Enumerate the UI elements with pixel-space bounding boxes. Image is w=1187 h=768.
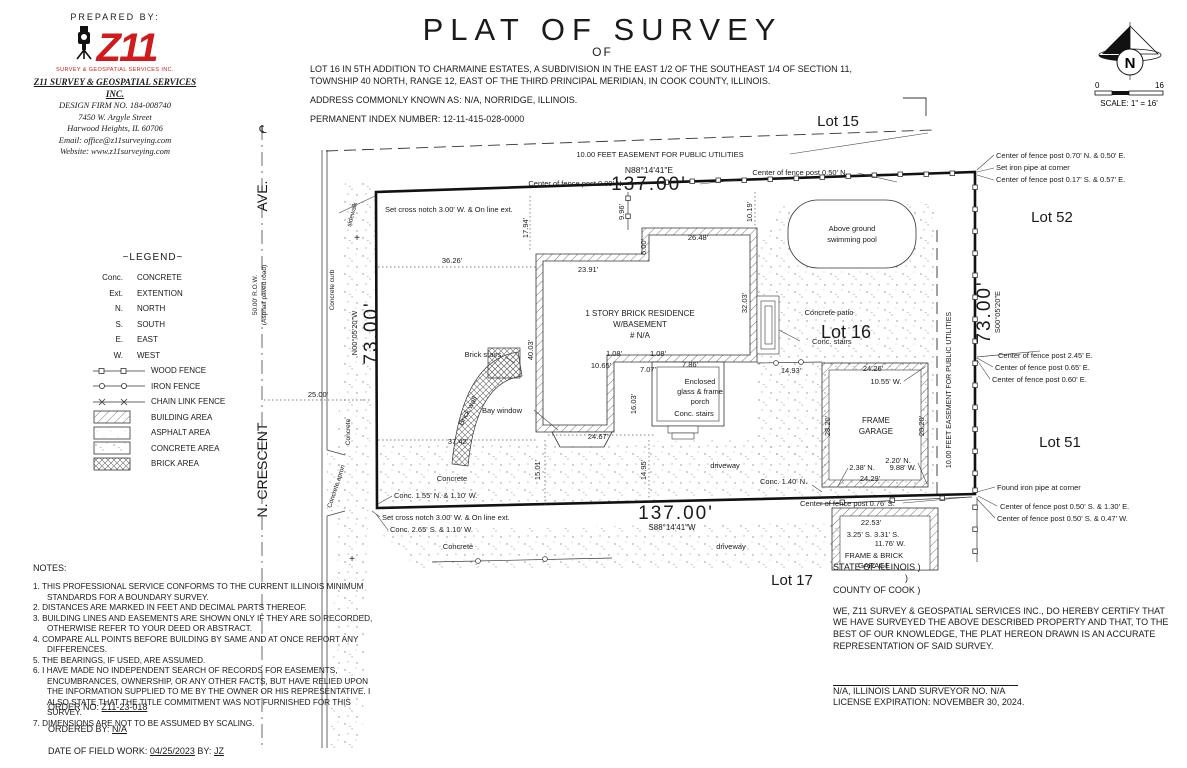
note-item: 5. THE BEARINGS, IF USED, ARE ASSUMED. [33,656,381,667]
dim-988w: 9.88' W. [890,463,917,472]
scale-sixteen: 16 [1155,81,1164,90]
porch-label-1: Enclosed [685,377,716,386]
dim-238n: 2.38' N. [849,463,875,472]
legend-label: CONCRETE AREA [151,444,219,453]
order-no-line: ORDER NO: Z11-23-018 [48,702,224,712]
legend-row: W.WEST [93,348,278,364]
firm-website: Website: www.z11surveying.com [30,146,200,157]
dim-2820-w: 28.20' [823,415,832,436]
lot-corner-bracket [903,98,926,116]
bearing-south: S88°14'41"W [648,523,696,532]
fence-post-076s: Center of fence post 0.76' S. [800,499,895,508]
note-item: 2. DISTANCES ARE MARKED IN FEET AND DECI… [33,603,381,614]
legend-row: S.SOUTH [93,317,278,333]
dim-996: 9.96' [617,203,626,220]
fence-post-060e: Center of fence post 0.60' E. [992,375,1087,384]
bay-window-label: Bay window [482,406,523,415]
dim-1794: 17.94' [521,217,530,238]
concrete-sw-label: Concrete [437,474,467,483]
brick-stairs-label: Brick stairs [465,350,502,359]
legend-label: CONCRETE [137,273,182,282]
dim-707: 7.07' [640,365,657,374]
legend-row: BUILDING AREA [93,410,278,426]
fieldwork-date: 04/25/2023 [150,746,195,756]
legend-label: SOUTH [137,320,165,329]
cert-paren: ) [905,573,1181,584]
legend-row: Ext.EXTENTION [93,286,278,302]
dim-east-73: 73.00' [974,280,995,343]
dim-1019: 10.19' [745,201,754,222]
dim-2820-e: 28.20' [917,415,926,436]
design-firm-no: DESIGN FIRM NO. 184-008740 [30,100,200,111]
lot-51-label: Lot 51 [1039,434,1081,451]
title-of: OF [310,45,895,59]
fence-post-245e: Center of fence post 2.45' E. [998,351,1093,360]
conc-140n: Conc. 1.40' N. [760,477,807,486]
porch-label-2: glass & frame [677,387,723,396]
certification-block: STATE OF ILLINOIS ) ) COUNTY OF COOK ) W… [833,562,1181,709]
legend-row: CHAIN LINK FENCE [93,394,278,410]
concrete-area-swatch [93,441,151,455]
cert-state: STATE OF ILLINOIS ) [833,562,1181,573]
legend-abbr: E. [93,335,137,344]
fieldwork-line: DATE OF FIELD WORK: 04/25/2023 BY: JZ [48,746,224,756]
dim-2648: 26.48' [688,233,709,242]
cross-notch-north: Set cross notch 3.00' W. & On line ext. [385,205,513,214]
legend-abbr: N. [93,304,137,313]
fence-post-065e: Center of fence post 0.65' E. [995,363,1090,372]
dim-786: 7.86' [682,360,699,369]
dim-25: 25.00' [308,390,329,399]
garage-label-1: FRAME [862,416,890,425]
legend-row: ASPHALT AREA [93,425,278,441]
bearing-west: N00°05'20"W [350,310,359,356]
porch-shape [652,362,724,439]
dim-1493: 14.93' [781,366,802,375]
dim-600: 6.00' [639,238,648,255]
legend-row: BRICK AREA [93,456,278,472]
found-iron-pipe: Found iron pipe at corner [997,483,1081,492]
legend-label: WOOD FENCE [151,366,206,375]
dim-2426: 24.26' [863,364,884,373]
cross-notch-south: Set cross notch 3.00' W. & On line ext. [382,513,510,522]
fieldwork-by-label: BY: [197,746,211,756]
fieldwork-by-value: JZ [214,746,224,756]
note-item: 4. COMPARE ALL POINTS BEFORE BUILDING BY… [33,635,381,656]
surveyor-name: N/A, ILLINOIS LAND SURVEYOR NO. N/A [833,686,1181,698]
note-item: 1. THIS PROFESSIONAL SERVICE CONFORMS TO… [33,582,381,603]
patio-stairs-label: Conc. stairs [812,337,852,346]
easement-east-label: 10.00 FEET EASEMENT FOR PUBLIC UTILITIES [946,312,953,468]
firm-street: 7450 W. Argyle Street [30,112,200,123]
legend-label: IRON FENCE [151,382,200,391]
bearing-east: S00°05'20"E [993,291,1002,333]
permanent-index-number: PERMANENT INDEX NUMBER: 12-11-415-028-00… [310,114,895,124]
patio-label: Concrete patio [805,308,854,317]
compass-block: N 0 16 SCALE: 1" = 16' [1085,22,1180,122]
prepared-by-block: PREPARED BY: Z11 SURVEY & GEOSPATIAL SER… [30,12,200,158]
dim-south-137: 137.00' [638,503,714,524]
residence-label-3: # N/A [630,331,651,340]
dim-2253: 22.53' [861,518,882,527]
wood-fence-symbol [93,366,151,376]
legend-label: EAST [137,335,158,344]
dim-3203: 32.03' [740,292,749,313]
legend-row: Conc.CONCRETE [93,270,278,286]
dim-325s-331s: 3.25' S. 3.31' S. [847,530,899,539]
legend-label: EXTENTION [137,289,183,298]
legend-abbr: S. [93,320,137,329]
conc-265s-110w: Conc. 2.65' S. & 1.10' W. [390,525,473,534]
legend-abbr: W. [93,351,137,360]
plus-mark-1: + [354,233,360,244]
lot-52-label: Lot 52 [1031,209,1073,226]
north-easement-line [326,130,933,151]
dim-1603: 16.03' [629,393,638,414]
concrete-w-label: Concrete [345,418,352,445]
swimming-pool-shape [788,200,916,268]
concrete-s-label: Concrete [443,542,473,551]
conc-155n-110w: Conc. 1.55' N. & 1.10' W. [394,491,477,500]
concrete-curb-label: Concrete curb [329,269,336,310]
concrete-stairs-shape [757,296,779,354]
legend-abbr: Conc. [93,273,137,282]
driveway-label-1: driveway [710,461,740,470]
iron-fence-symbol [93,381,151,391]
set-iron-pipe: Set iron pipe at corner [996,163,1070,172]
legend-row: WOOD FENCE [93,363,278,379]
dim-108b: 1.08' [650,349,667,358]
fieldwork-label: DATE OF FIELD WORK: [48,746,147,756]
legend-label: BUILDING AREA [151,413,212,422]
dim-1055w: 10.55' W. [870,377,901,386]
cert-county: COUNTY OF COOK ) [833,585,1181,596]
title-block: PLAT OF SURVEY OF LOT 16 IN 5TH ADDITION… [310,12,895,124]
note-item: 3. BUILDING LINES AND EASEMENTS ARE SHOW… [33,614,381,635]
chain-link-fence-symbol [93,397,151,407]
dim-2391: 23.91' [578,265,599,274]
scale-text: SCALE: 1" = 16' [1100,99,1158,108]
dim-1176w: 11.76' W. [875,539,905,548]
residence-label-1: 1 STORY BRICK RESIDENCE [585,309,694,318]
firm-name: Z11 SURVEY & GEOSPATIAL SERVICES INC. [30,76,200,100]
lot-17-label: Lot 17 [771,572,813,589]
ordered-by-label: ORDERED BY: [48,724,110,734]
commonly-known-address: ADDRESS COMMONLY KNOWN AS: N/A, NORRIDGE… [310,95,895,105]
license-expiration: LICENSE EXPIRATION: NOVEMBER 30, 2024. [833,697,1181,709]
page-title: PLAT OF SURVEY [310,12,895,48]
dim-1495: 14.95' [639,459,648,480]
fence-post-017s-057e: Center of fence post 0.17' S. & 0.57' E. [996,175,1125,184]
porch-stairs-label: Conc. stairs [674,409,714,418]
residence-label-2: W/BASEMENT [613,320,667,329]
scale-zero: 0 [1095,81,1100,90]
firm-city: Harwood Heights, IL 60706 [30,123,200,134]
easement-north-label: 10.00 FEET EASEMENT FOR PUBLIC UTILITIES [576,150,743,159]
legend-row: N.NORTH [93,301,278,317]
driveway-label-2: driveway [716,542,746,551]
ordered-by-line: ORDERED BY: N/A [48,724,224,734]
dim-west-73: 73.00' [361,301,382,364]
street-ave: AVE. [254,181,270,212]
legend-label: BRICK AREA [151,459,199,468]
asphalt-area-swatch [93,426,151,440]
fence-post-050s-047w: Center of fence post 0.50' S. & 0.47' W. [997,514,1128,523]
ordered-by-value: N/A [112,724,127,734]
fence-post-050n: Center of fence post 0.50' N. [752,168,847,177]
fence-post-050s-130e: Center of fence post 0.50' S. & 1.30' E. [1000,502,1129,511]
legend-row: E.EAST [93,332,278,348]
scale-bar: 0 16 SCALE: 1" = 16' [1095,81,1164,108]
dim-2429: 24.29' [860,474,881,483]
logo-tagline: SURVEY & GEOSPATIAL SERVICES INC. [30,67,200,73]
dim-108a: 1.08' [606,349,623,358]
dim-1501: 15.01' [533,459,542,480]
surveyor-instrument-icon [74,24,94,65]
fence-post-009n: Center of fence post 0.09' N. [528,179,623,188]
garage2-label-1: FRAME & BRICK [845,551,903,560]
porch-label-3: porch [691,397,710,406]
legend-label: NORTH [137,304,165,313]
order-no-label: ORDER NO: [48,702,99,712]
z11-logo: Z11 [97,31,157,65]
legend-row: CONCRETE AREA [93,441,278,457]
order-no-value: Z11-23-018 [102,702,148,712]
fence-post-070n-050e: Center of fence post 0.70' N. & 0.50' E. [996,151,1126,160]
dim-4003: 40.03' [526,339,535,360]
dim-1065: 10.65' [591,361,612,370]
pool-label-2: swimming pool [827,235,877,244]
legend: ~LEGEND~ Conc.CONCRETE Ext.EXTENTION N.N… [93,252,278,472]
legend-label: WEST [137,351,160,360]
legend-label: ASPHALT AREA [151,428,210,437]
dim-3742: 37.42' [448,437,469,446]
north-arrow-icon: N 0 16 SCALE: 1" = 16' [1085,22,1180,117]
legend-title: ~LEGEND~ [93,252,213,263]
brick-area-swatch [93,457,151,471]
legend-abbr: Ext. [93,289,137,298]
garage-label-2: GARAGE [859,427,893,436]
dim-2467: 24.67' [588,432,609,441]
plan-labels: Lot 15Lot 52Lot 51Lot 17Lot 1610.00 FEET… [252,113,1129,589]
pool-label-1: Above ground [829,224,876,233]
cert-body: WE, Z11 SURVEY & GEOSPATIAL SERVICES INC… [833,606,1181,653]
legend-label: CHAIN LINK FENCE [151,397,225,406]
firm-email: Email: office@z11surveying.com [30,135,200,146]
dim-3626: 36.26' [442,256,463,265]
legal-description: LOT 16 IN 5TH ADDITION TO CHARMAINE ESTA… [310,64,895,87]
compass-n-label: N [1125,55,1136,72]
notes-title: NOTES: [33,563,381,573]
legend-row: IRON FENCE [93,379,278,395]
building-area-swatch [93,410,151,424]
prepared-by-label: PREPARED BY: [30,12,200,22]
order-block: ORDER NO: Z11-23-018 ORDERED BY: N/A DAT… [48,690,224,756]
centerline-symbol: ℄ [258,124,266,136]
